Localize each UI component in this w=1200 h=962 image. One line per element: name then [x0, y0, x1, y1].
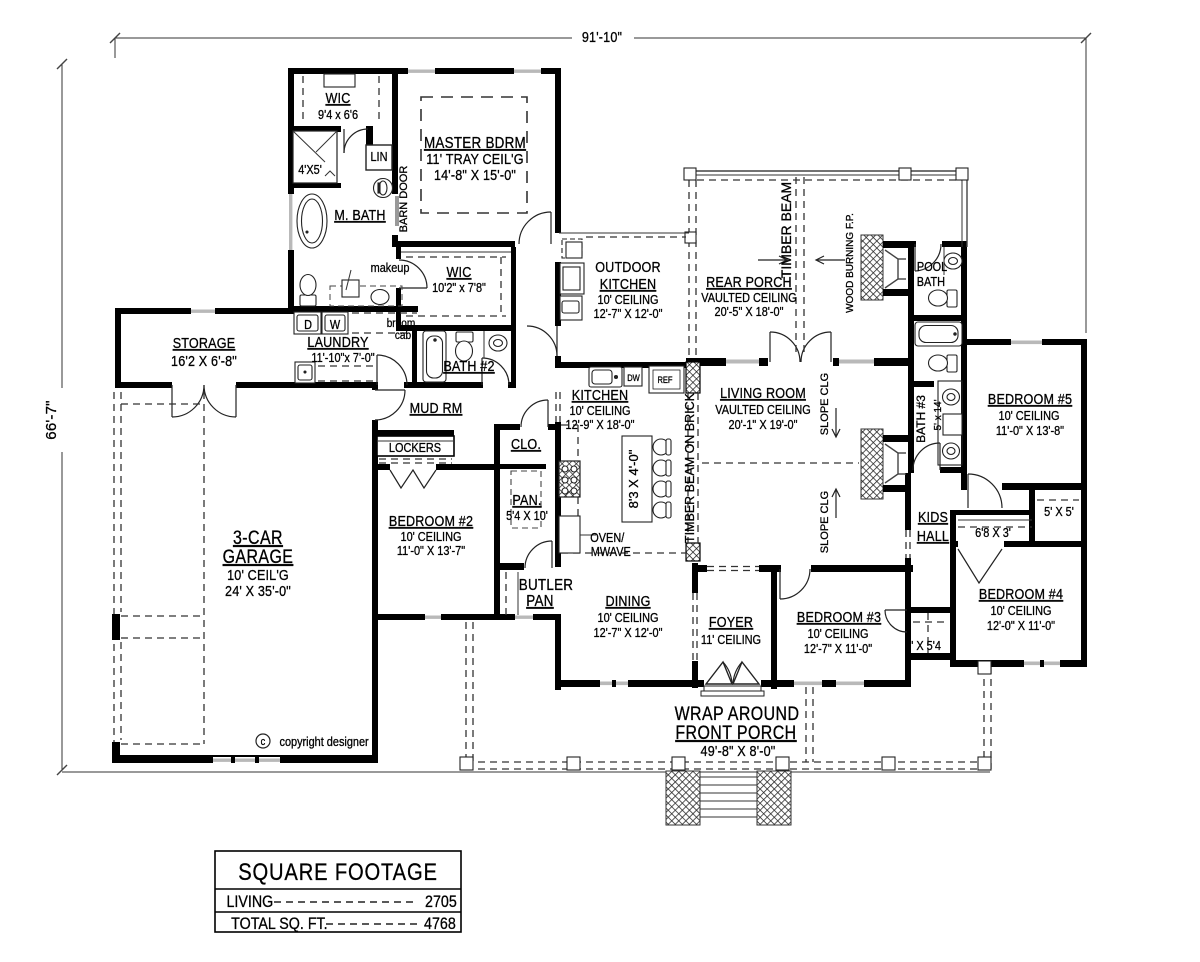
svg-text:66'-7": 66'-7" [43, 400, 60, 439]
svg-text:49'-8" X 8'-0": 49'-8" X 8'-0" [701, 742, 776, 759]
svg-text:10' CEILING: 10' CEILING [598, 610, 659, 625]
svg-text:9'4 x 6'6: 9'4 x 6'6 [318, 107, 358, 122]
svg-text:POOL: POOL [917, 259, 948, 274]
svg-text:MWAVE: MWAVE [591, 544, 631, 559]
svg-text:12'-0" X 11'-0": 12'-0" X 11'-0" [987, 618, 1055, 633]
svg-text:BEDROOM #2: BEDROOM #2 [389, 512, 473, 529]
svg-text:91'-10": 91'-10" [582, 28, 622, 45]
svg-text:8'3 X 4'-0": 8'3 X 4'-0" [626, 449, 641, 508]
svg-text:WIC: WIC [326, 89, 351, 106]
svg-text:5' X 5': 5' X 5' [1044, 504, 1074, 519]
svg-text:D: D [304, 317, 312, 332]
svg-text:11'-0" X 13'-7": 11'-0" X 13'-7" [397, 543, 465, 558]
svg-text:KITCHEN: KITCHEN [572, 386, 628, 403]
svg-text:LIVING: LIVING [226, 893, 273, 911]
svg-text:LIVING ROOM: LIVING ROOM [720, 384, 806, 401]
svg-text:VAULTED CEILING: VAULTED CEILING [701, 290, 796, 305]
svg-text:BATH #2: BATH #2 [443, 357, 494, 374]
svg-text:M. BATH: M. BATH [334, 206, 385, 223]
svg-text:MUD RM: MUD RM [410, 399, 463, 416]
svg-text:20'-5" X 18'-0": 20'-5" X 18'-0" [715, 304, 784, 319]
svg-text:SQUARE FOOTAGE: SQUARE FOOTAGE [238, 858, 438, 885]
svg-text:4768: 4768 [424, 915, 456, 933]
svg-text:12'-7" X 12'-0": 12'-7" X 12'-0" [594, 306, 663, 321]
svg-text:LIN: LIN [371, 149, 388, 164]
svg-text:FOYER: FOYER [709, 613, 753, 630]
svg-text:SLOPE CLG: SLOPE CLG [819, 491, 831, 553]
svg-text:DW: DW [627, 372, 640, 383]
svg-text:KITCHEN: KITCHEN [600, 275, 656, 292]
svg-text:10' CEILING: 10' CEILING [570, 403, 631, 418]
svg-text:10' CEILING: 10' CEILING [991, 603, 1052, 618]
svg-text:BUTLER: BUTLER [519, 577, 574, 594]
svg-text:10' CEIL'G: 10' CEIL'G [227, 566, 289, 583]
svg-text:copyright designer: copyright designer [279, 734, 368, 749]
svg-text:BEDROOM #5: BEDROOM #5 [988, 390, 1072, 407]
svg-text:KIDS: KIDS [918, 508, 948, 525]
svg-text:5' x 14': 5' x 14' [933, 399, 944, 430]
svg-text:4' X 5'4: 4' X 5'4 [905, 638, 941, 653]
svg-text:BEDROOM #3: BEDROOM #3 [797, 608, 881, 625]
svg-text:11'-0" X 13'-8": 11'-0" X 13'-8" [996, 423, 1064, 438]
svg-text:5'4 X 10': 5'4 X 10' [506, 508, 548, 523]
svg-text:BATH: BATH [917, 274, 945, 289]
svg-text:VAULTED CEILING: VAULTED CEILING [715, 402, 810, 417]
svg-text:10' CEILING: 10' CEILING [999, 408, 1060, 423]
svg-text:cab: cab [395, 329, 411, 342]
svg-text:BARN DOOR: BARN DOOR [398, 166, 410, 233]
svg-text:10' CEILING: 10' CEILING [401, 529, 462, 544]
svg-text:12'-9" X 18'-0": 12'-9" X 18'-0" [566, 417, 635, 432]
svg-text:16'2 X 6'-8": 16'2 X 6'-8" [171, 352, 237, 369]
svg-text:HALL: HALL [917, 527, 949, 544]
svg-text:BEDROOM #4: BEDROOM #4 [979, 585, 1063, 602]
svg-text:DINING: DINING [605, 592, 650, 609]
svg-text:11' CEILING: 11' CEILING [701, 632, 761, 647]
svg-text:11'-10"x 7'-0": 11'-10"x 7'-0" [311, 350, 374, 365]
svg-text:6'8 X 3': 6'8 X 3' [975, 525, 1011, 540]
svg-text:OUTDOOR: OUTDOOR [595, 258, 661, 275]
svg-text:BATH #3: BATH #3 [914, 395, 928, 443]
svg-text:4'X5': 4'X5' [298, 162, 322, 177]
svg-text:10' CEILING: 10' CEILING [598, 292, 659, 307]
svg-text:STORAGE: STORAGE [173, 334, 236, 351]
svg-text:OVEN/: OVEN/ [590, 530, 625, 545]
svg-text:TIMBER BEAM: TIMBER BEAM [778, 182, 794, 278]
svg-text:PAN: PAN [526, 593, 553, 610]
svg-text:SLOPE CLG: SLOPE CLG [819, 373, 831, 435]
svg-text:20'-1" X 19'-0": 20'-1" X 19'-0" [729, 417, 798, 432]
svg-text:PAN.: PAN. [512, 491, 541, 508]
svg-text:10' CEILING: 10' CEILING [808, 626, 869, 641]
svg-text:WOOD BURNING F.P.: WOOD BURNING F.P. [845, 213, 856, 313]
svg-text:TIMBER BEAM ON BRICK: TIMBER BEAM ON BRICK [683, 392, 697, 543]
svg-text:2705: 2705 [425, 893, 457, 911]
svg-text:24' X 35'-0": 24' X 35'-0" [225, 582, 291, 599]
svg-text:LOCKERS: LOCKERS [389, 440, 441, 455]
svg-text:CLO.: CLO. [511, 435, 541, 452]
svg-text:makeup: makeup [371, 260, 410, 275]
svg-text:12'-7" X 12'-0": 12'-7" X 12'-0" [594, 625, 663, 640]
svg-text:14'-8" X 15'-0": 14'-8" X 15'-0" [434, 166, 516, 183]
svg-text:11' TRAY CEIL'G: 11' TRAY CEIL'G [426, 150, 523, 167]
svg-text:c: c [261, 736, 266, 748]
svg-text:FRONT PORCH: FRONT PORCH [675, 722, 796, 744]
svg-text:REF: REF [657, 374, 672, 385]
svg-text:GARAGE: GARAGE [223, 546, 294, 568]
svg-text:12'-7" X 11'-0": 12'-7" X 11'-0" [804, 641, 872, 656]
svg-text:10'2" x 7'8": 10'2" x 7'8" [432, 280, 486, 295]
svg-text:WIC: WIC [447, 263, 472, 280]
svg-text:TOTAL SQ. FT.: TOTAL SQ. FT. [231, 915, 327, 933]
svg-text:LAUNDRY: LAUNDRY [307, 333, 368, 350]
svg-text:W: W [330, 317, 341, 332]
